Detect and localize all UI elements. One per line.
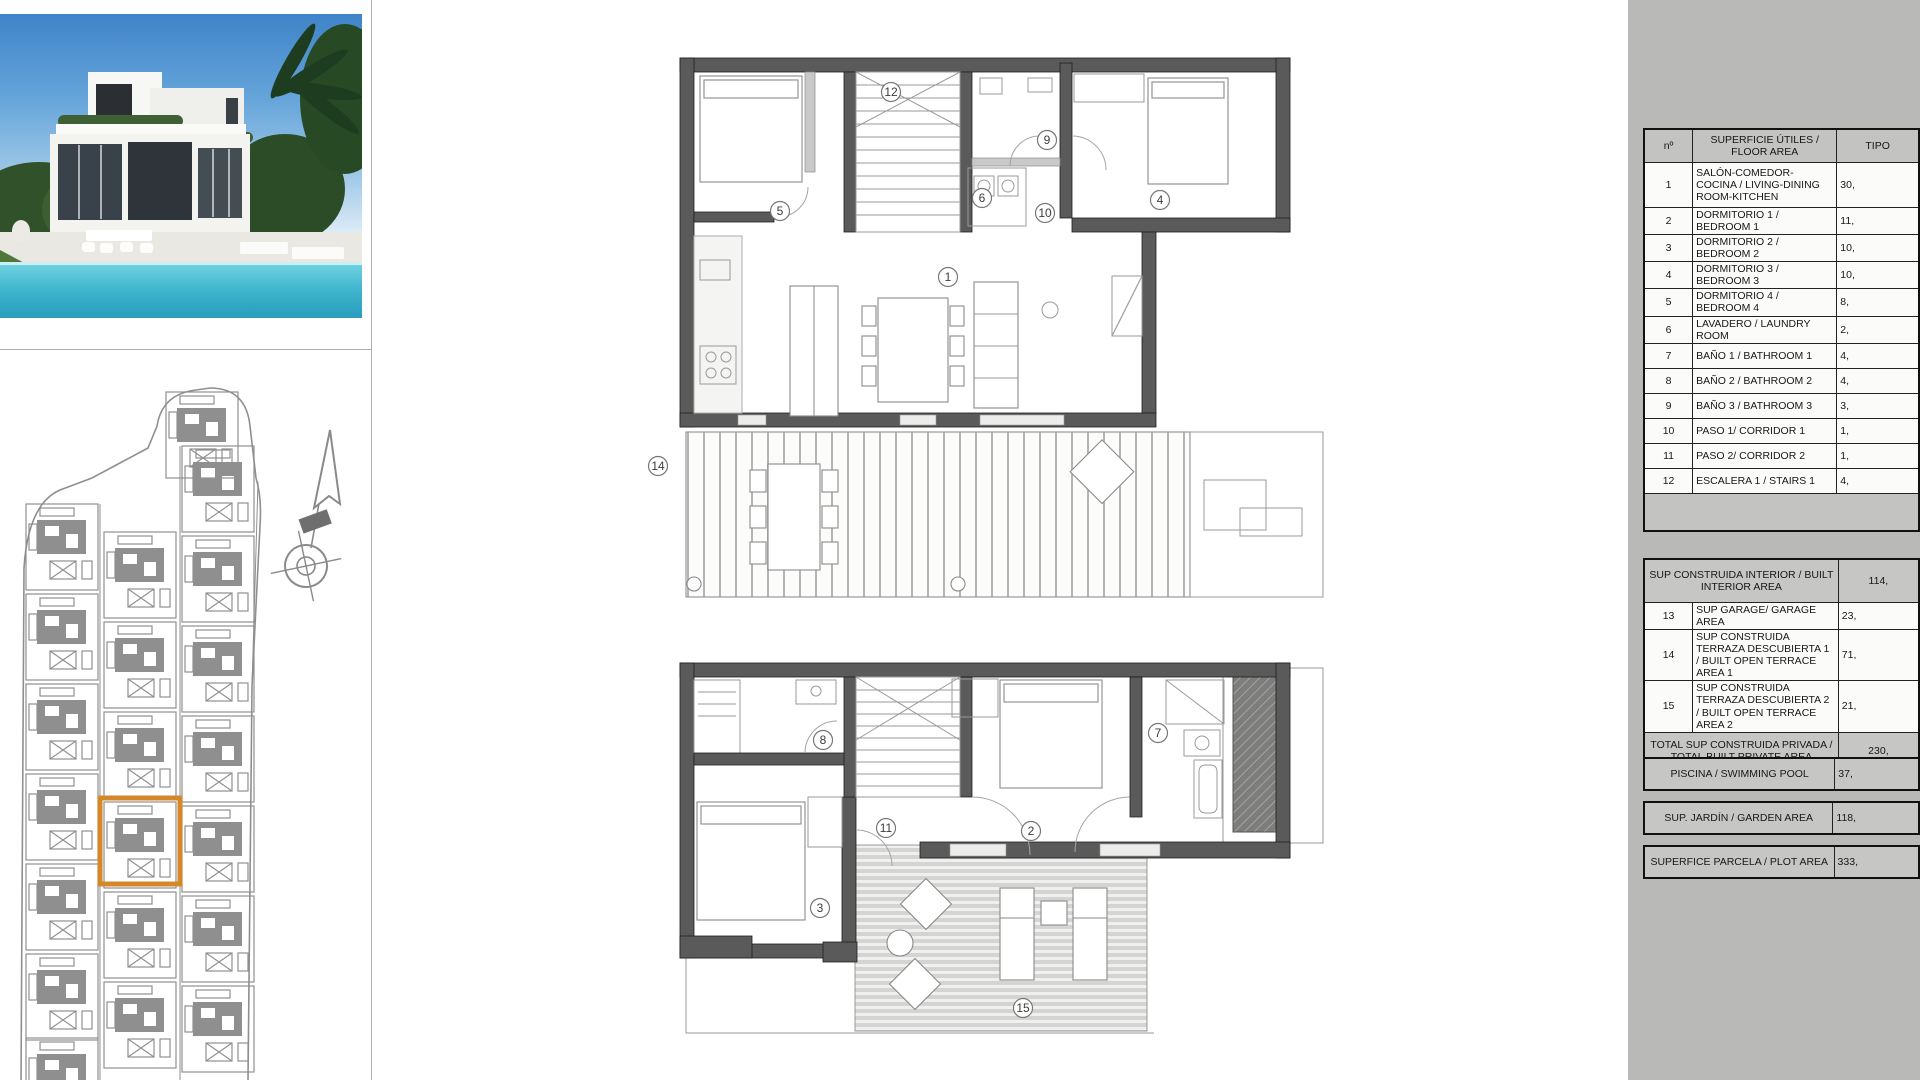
cell-no: 4	[1644, 262, 1693, 289]
cell-no: 11	[1644, 443, 1693, 468]
cell-no: 3	[1644, 235, 1693, 262]
site-plot-grid	[26, 392, 254, 1080]
table-row: 2 DORMITORIO 1 / BEDROOM 1 11,	[1644, 208, 1919, 235]
header-area: SUPERFICIE ÚTILES / FLOOR AREA	[1693, 129, 1837, 163]
built-area-table: SUP CONSTRUIDA INTERIOR / BUILT INTERIOR…	[1643, 558, 1920, 771]
cell-no: 14	[1644, 630, 1693, 681]
table-row: 9 BAÑO 3 / BATHROOM 3 3,	[1644, 393, 1919, 418]
outdoor-chair	[120, 242, 133, 252]
room-label: 5	[777, 204, 784, 218]
cell-label: DORMITORIO 1 / BEDROOM 1	[1693, 208, 1837, 235]
table-row: PISCINA / SWIMMING POOL 37,	[1644, 758, 1919, 790]
cell-label: SUP GARAGE/ GARAGE AREA	[1693, 603, 1839, 630]
cell-no: 12	[1644, 468, 1693, 493]
cell-value: 21,	[1838, 681, 1919, 732]
header-tipo: TIPO	[1837, 129, 1919, 163]
cell-value: 4,	[1837, 343, 1919, 368]
cell-no: 15	[1644, 681, 1693, 732]
table-row: 4 DORMITORIO 3 / BEDROOM 3 10,	[1644, 262, 1919, 289]
cell-value: 30,	[1837, 163, 1919, 208]
cell-no: 9	[1644, 393, 1693, 418]
cell-no: 1	[1644, 163, 1693, 208]
cell-value: 3,	[1837, 393, 1919, 418]
table-row: SUP CONSTRUIDA INTERIOR / BUILT INTERIOR…	[1644, 559, 1919, 603]
cell-no: 7	[1644, 343, 1693, 368]
cell-no: 2	[1644, 208, 1693, 235]
room-label: 1	[945, 270, 952, 284]
pool-edge	[0, 262, 362, 265]
room-label: 15	[1016, 1001, 1030, 1015]
cell-label: DORMITORIO 3 / BEDROOM 3	[1693, 262, 1837, 289]
outdoor-table	[86, 230, 152, 241]
cell-label: BAÑO 2 / BATHROOM 2	[1693, 368, 1837, 393]
cell-value: 333,	[1834, 846, 1919, 878]
floor-area-table: nº SUPERFICIE ÚTILES / FLOOR AREA TIPO 1…	[1643, 128, 1920, 532]
cell-value: 23,	[1838, 603, 1919, 630]
table-row: 7 BAÑO 1 / BATHROOM 1 4,	[1644, 343, 1919, 368]
cell-label: ESCALERA 1 / STAIRS 1	[1693, 468, 1837, 493]
table-row: 11 PASO 2/ CORRIDOR 2 1,	[1644, 443, 1919, 468]
header-no: nº	[1644, 129, 1693, 163]
table-row: 14 SUP CONSTRUIDA TERRAZA DESCUBIERTA 1 …	[1644, 630, 1919, 681]
cell-label: SALÓN-COMEDOR-COCINA / LIVING-DINING ROO…	[1693, 163, 1837, 208]
floor-plans: 12 9 5 6 10 4 1 14 8 7 11 2 3 15	[600, 40, 1360, 1060]
pool-area-row: PISCINA / SWIMMING POOL 37,	[1643, 757, 1920, 791]
table-row: 15 SUP CONSTRUIDA TERRAZA DESCUBIERTA 2 …	[1644, 681, 1919, 732]
covered-porch	[128, 142, 192, 220]
table-row: 3 DORMITORIO 2 / BEDROOM 2 10,	[1644, 235, 1919, 262]
floor-plan-lower	[680, 663, 1323, 1033]
cell-label: DORMITORIO 2 / BEDROOM 2	[1693, 235, 1837, 262]
cell-label: SUP. JARDÍN / GARDEN AREA	[1644, 802, 1833, 834]
horizontal-divider	[0, 349, 372, 350]
cell-label: DORMITORIO 4 / BEDROOM 4	[1693, 289, 1837, 316]
glass-wall	[198, 148, 242, 218]
cell-label: PISCINA / SWIMMING POOL	[1644, 758, 1835, 790]
cell-no: 5	[1644, 289, 1693, 316]
cell-label: SUP CONSTRUIDA TERRAZA DESCUBIERTA 1 / B…	[1693, 630, 1839, 681]
plan-sheet: 12 9 5 6 10 4 1 14 8 7 11 2 3 15 nº SUPE…	[0, 0, 1920, 1080]
room-label: 14	[651, 459, 665, 473]
room-label: 6	[979, 191, 986, 205]
cell-value: 1,	[1837, 443, 1919, 468]
table-row: 1 SALÓN-COMEDOR-COCINA / LIVING-DINING R…	[1644, 163, 1919, 208]
cell-label: BAÑO 1 / BATHROOM 1	[1693, 343, 1837, 368]
table-row: 6 LAVADERO / LAUNDRY ROOM 2,	[1644, 316, 1919, 343]
cell-no: 10	[1644, 418, 1693, 443]
cell-value: 4,	[1837, 468, 1919, 493]
cell-no: 13	[1644, 603, 1693, 630]
cell-value: 10,	[1837, 235, 1919, 262]
outdoor-chair	[100, 243, 113, 253]
table-row: SUPERFICE PARCELA / PLOT AREA 333,	[1644, 846, 1919, 878]
room-label: 10	[1038, 206, 1052, 220]
room-label: 9	[1044, 133, 1051, 147]
cell-label: BAÑO 3 / BATHROOM 3	[1693, 393, 1837, 418]
cell-value: 71,	[1838, 630, 1919, 681]
sun-lounger	[292, 247, 344, 259]
cell-label: PASO 2/ CORRIDOR 2	[1693, 443, 1837, 468]
table-row: 10 PASO 1/ CORRIDOR 1 1,	[1644, 418, 1919, 443]
garden-area-row: SUP. JARDÍN / GARDEN AREA 118,	[1643, 801, 1920, 835]
table-row: 12 ESCALERA 1 / STAIRS 1 4,	[1644, 468, 1919, 493]
window-mullion	[100, 145, 102, 219]
cell-value: 1,	[1837, 418, 1919, 443]
cell-label: PASO 1/ CORRIDOR 1	[1693, 418, 1837, 443]
north-arrow-icon	[263, 430, 348, 609]
plot-area-row: SUPERFICE PARCELA / PLOT AREA 333,	[1643, 845, 1920, 879]
room-label: 3	[817, 901, 824, 915]
cell-value: 118,	[1833, 802, 1919, 834]
room-label: 12	[884, 85, 898, 99]
swimming-pool	[0, 264, 362, 318]
room-label: 7	[1155, 726, 1162, 740]
room-label: 11	[880, 821, 893, 835]
sun-lounger	[240, 242, 288, 254]
window-mullion	[228, 149, 230, 217]
floor-plan-upper	[680, 58, 1323, 597]
area-panel: nº SUPERFICIE ÚTILES / FLOOR AREA TIPO 1…	[1628, 0, 1920, 1080]
outdoor-chair	[140, 243, 153, 253]
cell-label: SUP CONSTRUIDA TERRAZA DESCUBIERTA 2 / B…	[1693, 681, 1839, 732]
window-mullion	[78, 145, 80, 219]
cell-no: 8	[1644, 368, 1693, 393]
glass-wall	[58, 144, 122, 220]
cell-label: SUP CONSTRUIDA INTERIOR / BUILT INTERIOR…	[1644, 559, 1838, 603]
site-plan	[0, 386, 372, 1080]
table-empty-row	[1644, 493, 1919, 531]
villa-photo	[0, 14, 362, 318]
room-label: 8	[820, 733, 827, 747]
table-row: 5 DORMITORIO 4 / BEDROOM 4 8,	[1644, 289, 1919, 316]
table-row: 8 BAÑO 2 / BATHROOM 2 4,	[1644, 368, 1919, 393]
window-mullion	[212, 149, 214, 217]
cell-value: 37,	[1835, 758, 1919, 790]
cell-value: 4,	[1837, 368, 1919, 393]
room-label: 2	[1028, 824, 1035, 838]
table-row: SUP. JARDÍN / GARDEN AREA 118,	[1644, 802, 1919, 834]
cell-label: LAVADERO / LAUNDRY ROOM	[1693, 316, 1837, 343]
table-row: 13 SUP GARAGE/ GARAGE AREA 23,	[1644, 603, 1919, 630]
cell-no: 6	[1644, 316, 1693, 343]
room-label: 4	[1157, 193, 1164, 207]
cell-value: 2,	[1837, 316, 1919, 343]
cell-value: 10,	[1837, 262, 1919, 289]
cell-label: SUPERFICE PARCELA / PLOT AREA	[1644, 846, 1834, 878]
cell-value: 8,	[1837, 289, 1919, 316]
table-header-row: nº SUPERFICIE ÚTILES / FLOOR AREA TIPO	[1644, 129, 1919, 163]
outdoor-chair	[82, 242, 95, 252]
cell-value: 114,	[1838, 559, 1919, 603]
plant-pot	[12, 220, 30, 242]
cell-value: 11,	[1837, 208, 1919, 235]
